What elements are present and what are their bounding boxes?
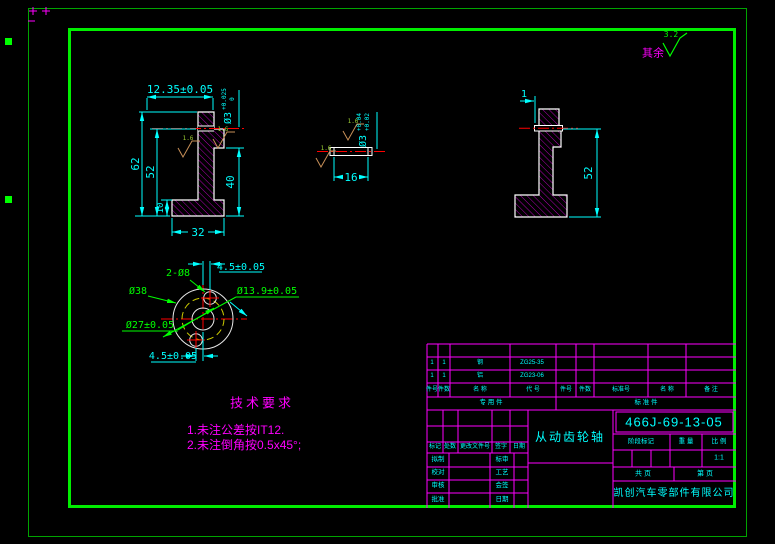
scale-value: 1:1 — [714, 455, 724, 462]
dim-52: 52 — [144, 165, 157, 178]
parts-header: 件数 — [579, 387, 591, 393]
parts-header: 名 称 — [473, 387, 487, 393]
dim-32: 32 — [191, 226, 204, 239]
parts-header: 备 注 — [704, 387, 718, 393]
sig-label: 日期 — [496, 497, 509, 504]
rev-header: 标记 — [429, 444, 441, 450]
dim-width-top: 12.35±0.05 — [147, 83, 213, 96]
view-detail-section: 16 Ø3 +0.04 +0.02 1.6 1.6 — [316, 112, 385, 184]
parts-cell: 1 — [442, 360, 445, 366]
sig-label: 拟制 — [432, 457, 445, 464]
drawing-number: 466J-69-13-05 — [625, 416, 723, 429]
sheet-total: 共 页 — [635, 471, 651, 478]
sig-label: 工艺 — [496, 470, 509, 477]
parts-header: 件号 — [426, 387, 438, 393]
label-bore-dia: Ø13.9±0.05 — [237, 285, 297, 297]
parts-header: 名 称 — [660, 387, 674, 393]
dim-40: 40 — [224, 175, 237, 188]
parts-cell: ZG25-35 — [520, 360, 544, 366]
dim-hole-tol-up: +0.025 — [221, 88, 228, 110]
general-roughness-value: 3.2 — [664, 30, 679, 39]
roughness-value: 1.6 — [348, 118, 359, 125]
label-outer-dia: Ø38 — [129, 285, 147, 297]
parts-header: 标准号 — [612, 387, 630, 393]
rev-header: 处数 — [444, 444, 456, 450]
dim-10: 10 — [156, 203, 166, 214]
roughness-value: 1.6 — [183, 135, 194, 142]
parts-header: 件号 — [560, 387, 572, 393]
general-roughness-note: 3.2 — [663, 30, 687, 56]
label-bolt-holes: 2-Ø8 — [166, 267, 190, 279]
parts-group-special: 专 用 件 — [479, 400, 502, 407]
sig-label: 批准 — [432, 497, 445, 504]
view-side-section: 1 52 — [515, 89, 601, 217]
rev-header: 签字 — [495, 444, 507, 450]
cad-drawing-sheet: 12.35±0.05 62 52 40 10 32 Ø3 +0.025 0 1.… — [0, 0, 775, 544]
stage-label: 阶段标记 — [628, 439, 654, 446]
dim-offset-top: 4.5±0.05 — [217, 262, 265, 273]
label-bolt-circle-dia: Ø27±0.05 — [126, 319, 174, 331]
sheet-number: 第 页 — [697, 471, 713, 478]
sig-label: 会签 — [496, 483, 509, 490]
rev-header: 更改文件号 — [460, 444, 490, 450]
dim-1: 1 — [521, 89, 527, 100]
tech-requirements-title: 技术要求 — [230, 397, 294, 410]
tech-requirement-line: 2.未注倒角按0.5x45°; — [187, 436, 301, 453]
weight-label: 重 量 — [679, 439, 694, 446]
sig-label: 校对 — [432, 470, 445, 477]
roughness-value: 1.6 — [321, 145, 332, 152]
detail-hole-dia: Ø3 — [357, 135, 369, 147]
rev-header: 日期 — [513, 444, 525, 450]
part-name: 从动齿轮轴 — [535, 431, 605, 443]
parts-cell: ZG23-06 — [520, 373, 544, 379]
dim-hole-tol-low: 0 — [229, 97, 236, 101]
roughness-value: 1.6 — [218, 126, 229, 133]
parts-cell: 1 — [430, 373, 433, 379]
parts-header: 代 号 — [526, 387, 540, 393]
parts-group-standard: 标 准 件 — [634, 400, 657, 407]
view-front-section: 12.35±0.05 62 52 40 10 32 Ø3 +0.025 0 1.… — [129, 83, 245, 239]
dim-hole-dia: Ø3 — [222, 112, 234, 124]
parts-header: 件数 — [438, 387, 450, 393]
general-note-other: 其余 — [642, 49, 664, 60]
parts-cell: 钢 — [477, 360, 483, 366]
parts-cell: 1 — [430, 360, 433, 366]
parts-cell: 1 — [442, 373, 445, 379]
sig-label: 审核 — [432, 483, 445, 490]
detail-tol-low: +0.02 — [364, 113, 371, 131]
parts-cell: 铝 — [477, 373, 483, 379]
dim-62: 62 — [129, 157, 142, 170]
dim-52-side: 52 — [582, 166, 595, 179]
sig-label: 标审 — [496, 457, 509, 464]
drawing-linework: 12.35±0.05 62 52 40 10 32 Ø3 +0.025 0 1.… — [0, 0, 775, 544]
plot-marks — [28, 7, 50, 21]
view-end: 2-Ø8 Ø38 Ø27±0.05 Ø13.9±0.05 4.5±0.05 4.… — [122, 261, 299, 362]
dim-16: 16 — [344, 171, 357, 184]
dim-offset-bottom: 4.5±0.05 — [149, 351, 197, 362]
company-name: 凯创汽车零部件有限公司 — [614, 489, 735, 499]
scale-label: 比 例 — [712, 439, 727, 446]
